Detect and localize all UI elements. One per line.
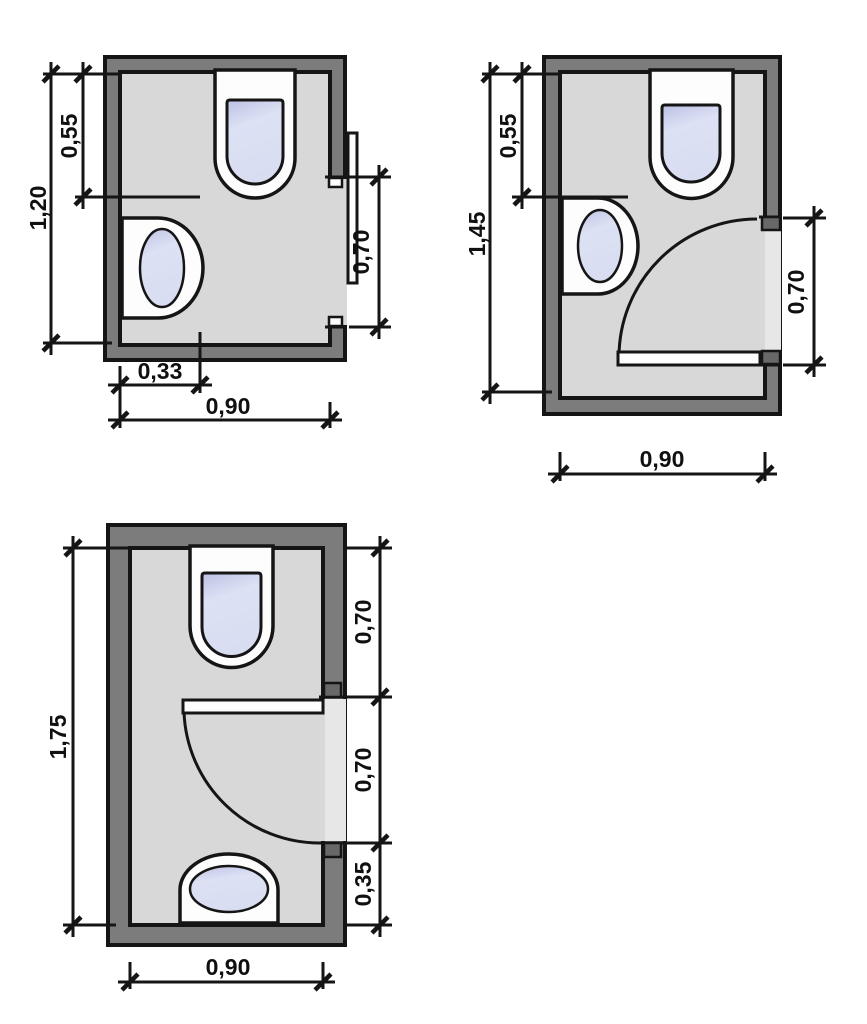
dim-label-bottom-zone: 0,35 — [350, 861, 376, 906]
dim-label-top-zone: 0,70 — [350, 600, 376, 645]
door-jamb — [329, 317, 342, 326]
dim-label-total-width: 0,90 — [206, 393, 251, 419]
dim-label-total-height: 1,75 — [45, 714, 71, 759]
plan-wc-long-inswing-door: 1,75 0,70 0,70 0,35 0,90 — [45, 525, 392, 990]
dim-label-door-width: 0,70 — [348, 230, 374, 275]
dim-label-total-height: 1,45 — [464, 211, 490, 256]
dim-label-total-width: 0,90 — [640, 446, 685, 472]
washbasin-bowl — [190, 866, 268, 912]
door-jamb — [324, 843, 341, 857]
dim-label-upper-zone: 0,55 — [56, 113, 82, 158]
door-leaf — [183, 700, 323, 713]
floor-plan-sheet: 1,20 0,55 0,70 0,33 0,90 — [0, 0, 867, 1024]
door-opening — [325, 179, 347, 325]
toilet-bowl — [662, 105, 720, 182]
door-threshold — [765, 219, 781, 363]
dim-label-total-height: 1,20 — [25, 186, 51, 231]
dim-label-fixture-offset: 0,33 — [138, 358, 183, 384]
door-jamb — [762, 217, 780, 230]
dim-label-total-width: 0,90 — [206, 954, 251, 980]
plan-wc-inswing-door: 1,45 0,55 0,70 0,90 — [464, 57, 826, 482]
washbasin-bowl — [578, 210, 622, 282]
dim-label-door-width: 0,70 — [783, 270, 809, 315]
toilet-bowl — [227, 100, 283, 184]
door-leaf — [618, 352, 760, 365]
door-jamb — [329, 178, 342, 187]
dim-label-door-width: 0,70 — [350, 748, 376, 793]
floor-plan-drawing: 1,20 0,55 0,70 0,33 0,90 — [0, 0, 867, 1024]
door-jamb — [762, 351, 780, 364]
washbasin-bowl — [140, 229, 184, 307]
dim-label-upper-zone: 0,55 — [495, 113, 521, 158]
plan-wc-sliding-door: 1,20 0,55 0,70 0,33 0,90 — [25, 57, 391, 428]
toilet-bowl — [202, 573, 261, 657]
door-threshold — [325, 699, 346, 841]
door-jamb — [324, 683, 341, 697]
